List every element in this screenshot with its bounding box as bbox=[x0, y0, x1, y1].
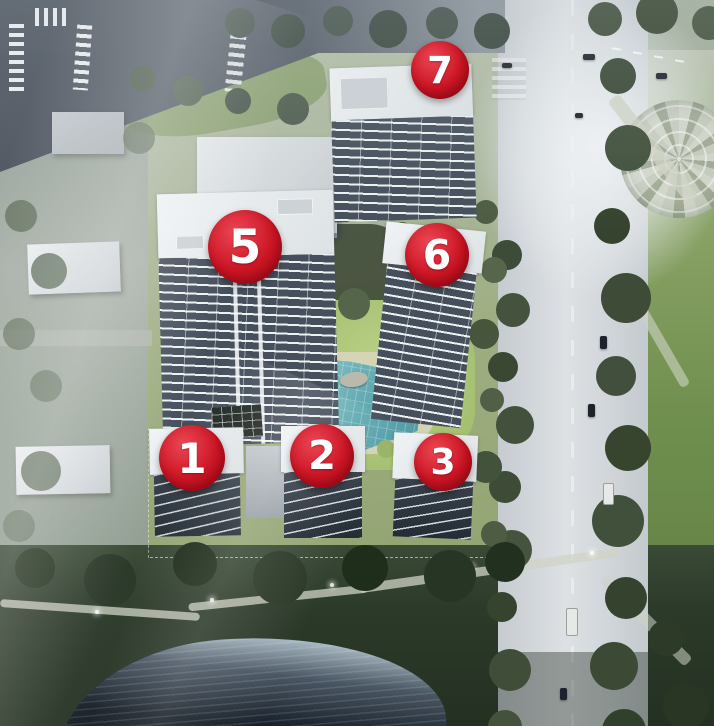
marker-number: 3 bbox=[430, 442, 455, 483]
car bbox=[560, 688, 567, 700]
path-light bbox=[590, 551, 594, 555]
bus bbox=[566, 608, 578, 636]
road-tree-shadow bbox=[498, 652, 648, 726]
aerial-site-plan: 1 2 3 5 6 7 bbox=[0, 0, 714, 726]
car bbox=[588, 404, 595, 417]
courtyard-tree bbox=[338, 288, 370, 320]
building-marker-7[interactable]: 7 bbox=[411, 41, 469, 99]
tower-6-facade bbox=[371, 264, 477, 429]
building-marker-1[interactable]: 1 bbox=[159, 425, 225, 491]
building-marker-2[interactable]: 2 bbox=[290, 424, 354, 488]
building-marker-3[interactable]: 3 bbox=[414, 433, 472, 491]
marker-number: 1 bbox=[177, 434, 206, 483]
path-light bbox=[330, 583, 334, 587]
path-light bbox=[470, 565, 474, 569]
bus bbox=[603, 483, 614, 505]
tree-row-avenue-west bbox=[492, 240, 522, 270]
marker-number: 6 bbox=[423, 231, 452, 279]
building-marker-6[interactable]: 6 bbox=[405, 223, 469, 287]
trees-southeast bbox=[648, 620, 684, 656]
light-haze bbox=[0, 0, 714, 230]
building-marker-5[interactable]: 5 bbox=[208, 210, 282, 284]
marker-number: 2 bbox=[308, 433, 336, 479]
marker-number: 7 bbox=[427, 49, 453, 92]
marker-number: 5 bbox=[229, 220, 262, 275]
car bbox=[600, 336, 607, 349]
